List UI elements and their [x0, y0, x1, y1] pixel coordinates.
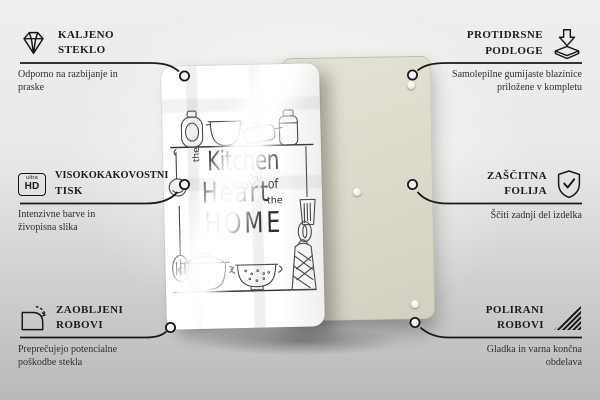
rubber-pad	[407, 81, 415, 89]
feature-zascitna-folija: ZAŠČITNA FOLIJA Ščiti zadnji del izdelka	[430, 169, 582, 222]
feature-protidrsne-podloge: PROTIDRSNE PODLOGE Samolepilne gumijaste…	[430, 28, 582, 94]
feature-title: PODLOGE	[430, 44, 543, 59]
feature-title: ZAŠČITNA	[430, 169, 547, 184]
feature-kaljeno-steklo: KALJENO STEKLO Odporno na razbijanje in …	[18, 28, 170, 94]
pot-doodle	[206, 121, 245, 146]
diamond-icon	[18, 30, 49, 56]
feature-subtitle: Intenzivne barve in živopisna slika	[18, 208, 122, 234]
feature-title: ZAOBLJENI	[56, 303, 170, 318]
grater-doodle	[291, 239, 316, 290]
product-infographic: the Kitchen is the ♡ of Heart the HOME	[0, 0, 600, 400]
design-word-heart: Heart	[202, 175, 271, 209]
ultra-hd-icon-text: HD	[25, 182, 40, 192]
feature-subtitle: Gladka in varna končna obdelava	[486, 343, 582, 369]
feature-visokokakovostni-tisk: ultra HD VISOKOKAKOVOSTNI TISK Intenzivn…	[18, 169, 170, 234]
cooking-pot-doodle	[178, 252, 233, 290]
ultra-hd-icon: ultra HD	[18, 173, 46, 196]
pan-doodle	[242, 117, 283, 144]
feature-title: POLIRANI	[430, 303, 544, 318]
colander-doodle	[231, 264, 282, 290]
feature-zaobljeni-robovi: ZAOBLJENI ROBOVI Preprečujejo potencialn…	[18, 303, 170, 369]
design-word-home: HOME	[204, 207, 283, 241]
feature-subtitle: Ščiti zadnji del izdelka	[432, 209, 582, 222]
rounded-corner-icon	[18, 304, 47, 333]
feature-title: PROTIDRSNE	[430, 28, 543, 43]
peeler-doodle	[298, 209, 312, 241]
feature-title: TISK	[55, 184, 170, 199]
feature-subtitle: Preprečujejo potencialne poškodbe stekla	[18, 343, 146, 369]
feature-subtitle: Samolepilne gumijaste blazinice priložen…	[432, 68, 582, 94]
feature-title: ROBOVI	[430, 318, 544, 333]
design-word-the: the	[192, 147, 202, 162]
feature-title: FOLIJA	[430, 184, 547, 199]
spatula-doodle	[299, 146, 316, 224]
feature-title: STEKLO	[58, 43, 170, 58]
rubber-pad	[353, 188, 361, 196]
jar-doodle	[181, 111, 203, 147]
shield-check-icon	[556, 169, 582, 199]
feature-title: ROBOVI	[56, 318, 170, 333]
polished-edge-icon	[553, 305, 582, 331]
anti-slip-pads-icon	[552, 28, 582, 59]
design-word-kitchen: Kitchen	[207, 143, 279, 177]
product-front-panel: the Kitchen is the ♡ of Heart the HOME	[161, 63, 325, 330]
rubber-pad	[411, 300, 419, 308]
feature-subtitle: Odporno na razbijanje in praske	[18, 68, 130, 94]
ladle-doodle	[168, 149, 186, 196]
design-word-the: the	[267, 195, 283, 206]
feature-title: KALJENO	[58, 28, 170, 43]
feature-title: VISOKOKAKOVOSTNI	[55, 169, 170, 183]
feature-polirani-robovi: POLIRANI ROBOVI Gladka in varna končna o…	[430, 303, 582, 369]
